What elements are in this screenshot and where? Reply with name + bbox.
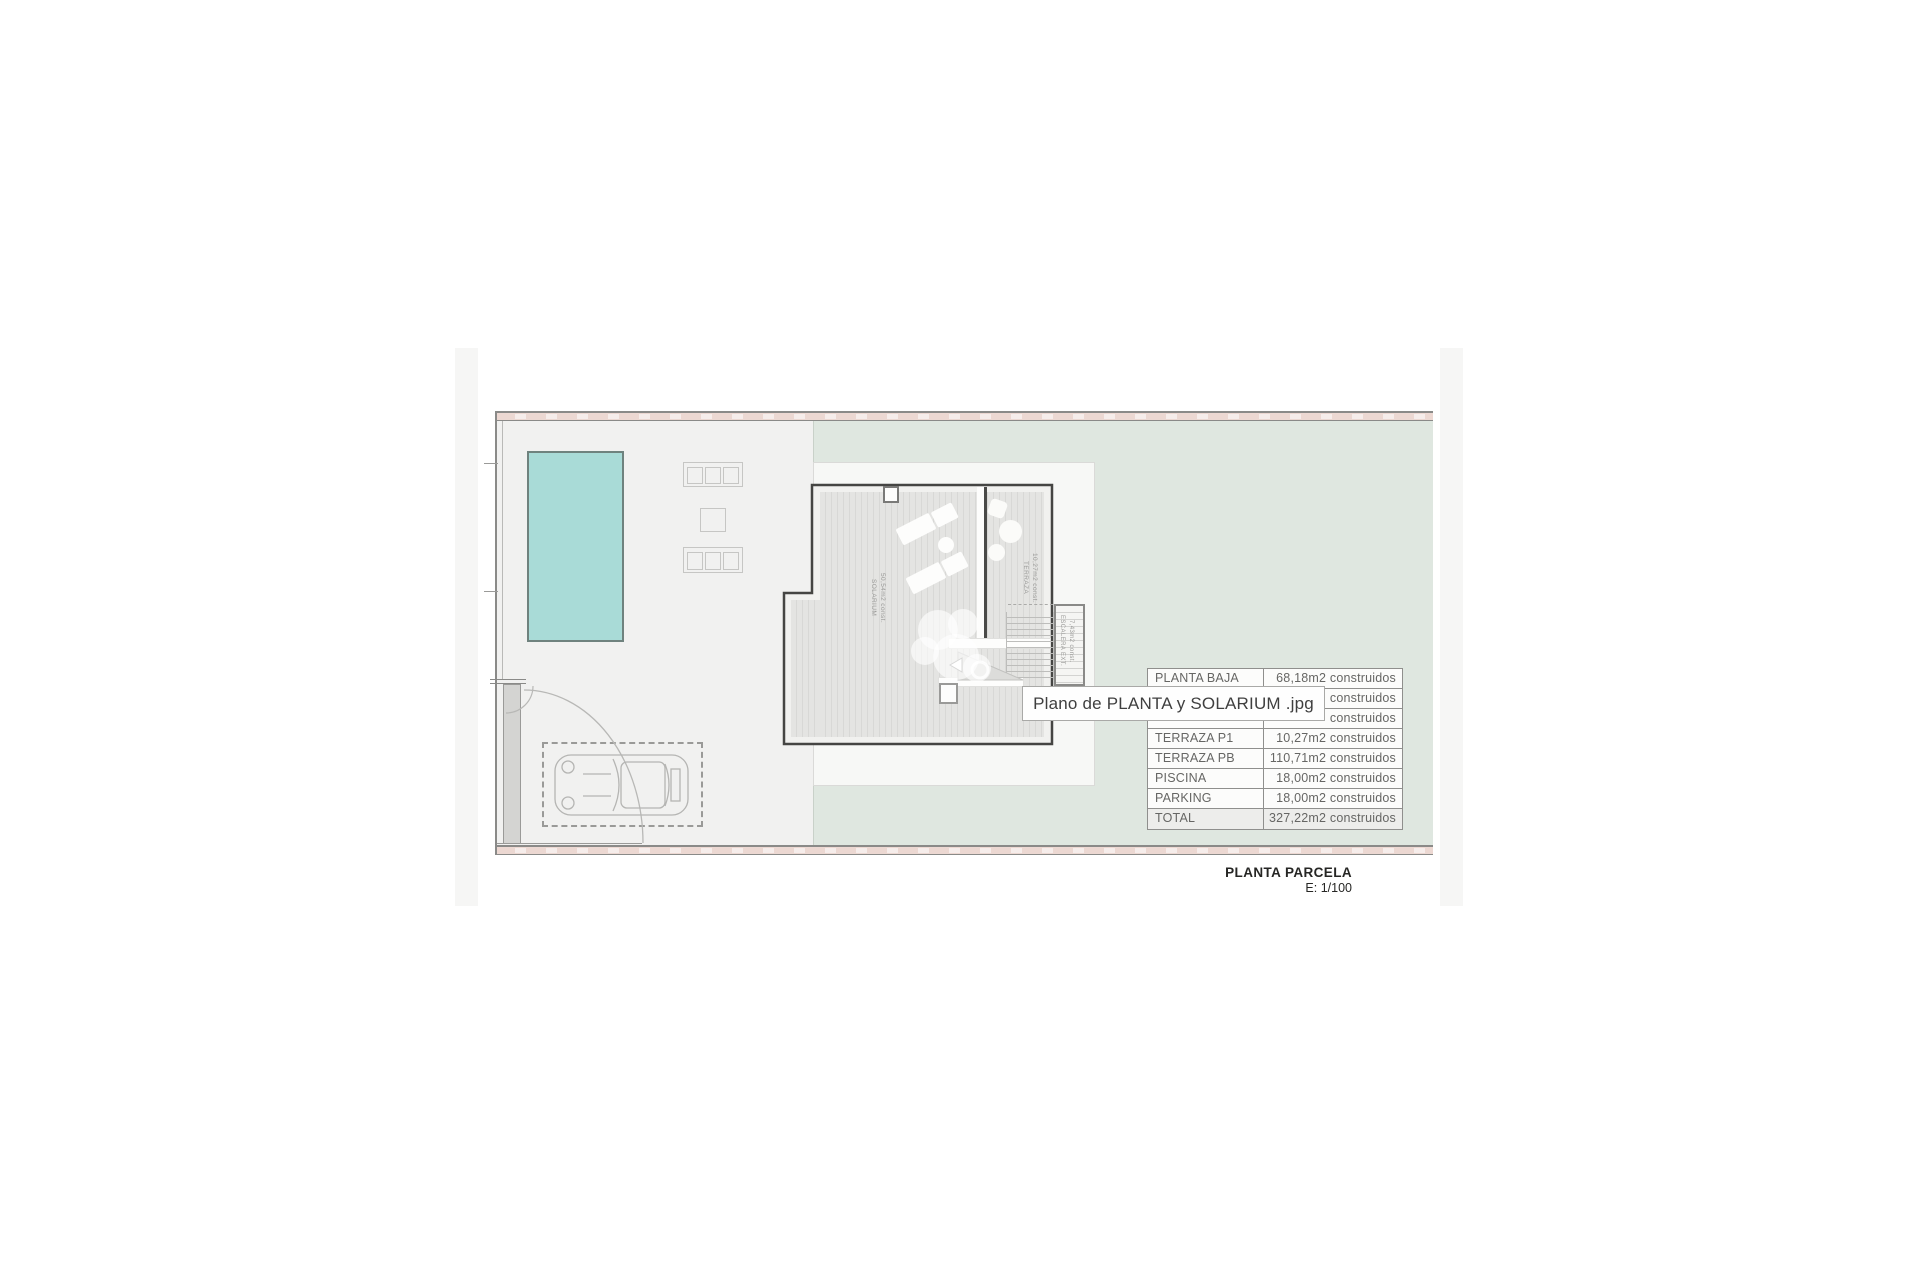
row-value: 110,71m2 construidos bbox=[1264, 749, 1402, 768]
terrace-label: TERRAZA 10,27m2 const. bbox=[1021, 548, 1039, 608]
driveway-line bbox=[497, 843, 642, 844]
table-row: PARKING18,00m2 construidos bbox=[1148, 789, 1402, 809]
solarium-deck-wing bbox=[791, 600, 820, 737]
row-label: PARKING bbox=[1148, 789, 1264, 808]
skylight-box bbox=[883, 486, 899, 503]
row-value: 18,00m2 construidos bbox=[1264, 789, 1402, 808]
row-label: PISCINA bbox=[1148, 769, 1264, 788]
filename-tooltip: Plano de PLANTA y SOLARIUM .jpg bbox=[1022, 686, 1325, 721]
wall-pillar bbox=[939, 683, 958, 704]
row-label: TERRAZA P1 bbox=[1148, 729, 1264, 748]
exterior-stairs-treads bbox=[1006, 612, 1054, 680]
entrance-wall bbox=[503, 684, 521, 844]
plant-pot bbox=[999, 520, 1022, 543]
row-label: TERRAZA PB bbox=[1148, 749, 1264, 768]
solarium-label: SOLARIUM 50,54m2 const. bbox=[869, 562, 887, 634]
row-label: TOTAL bbox=[1148, 809, 1264, 829]
table-row-total: TOTAL327,22m2 construidos bbox=[1148, 809, 1402, 829]
row-value: 18,00m2 construidos bbox=[1264, 769, 1402, 788]
divider-wall bbox=[977, 487, 984, 646]
entrance-wall-cap bbox=[490, 679, 526, 680]
plan-scale: E: 1/100 bbox=[1152, 881, 1352, 895]
table-row: TERRAZA PB110,71m2 construidos bbox=[1148, 749, 1402, 769]
row-value: 10,27m2 construidos bbox=[1264, 729, 1402, 748]
entrance-wall-cap bbox=[490, 683, 526, 684]
table-row: TERRAZA P110,27m2 construidos bbox=[1148, 729, 1402, 749]
side-table bbox=[938, 537, 954, 553]
plant-pot bbox=[988, 544, 1005, 561]
parking-space bbox=[542, 742, 703, 827]
plan-title: PLANTA PARCELA bbox=[1152, 865, 1352, 880]
plan-caption: PLANTA PARCELA E: 1/100 bbox=[1152, 865, 1352, 895]
exterior-stairs-label: ESCALERA EXT. 7,43m2 const. bbox=[1057, 608, 1075, 674]
page: SOLARIUM 50,54m2 const. TERRAZA 10,27m2 … bbox=[0, 0, 1920, 1280]
row-value: 327,22m2 construidos bbox=[1264, 809, 1402, 829]
table-row: PISCINA18,00m2 construidos bbox=[1148, 769, 1402, 789]
